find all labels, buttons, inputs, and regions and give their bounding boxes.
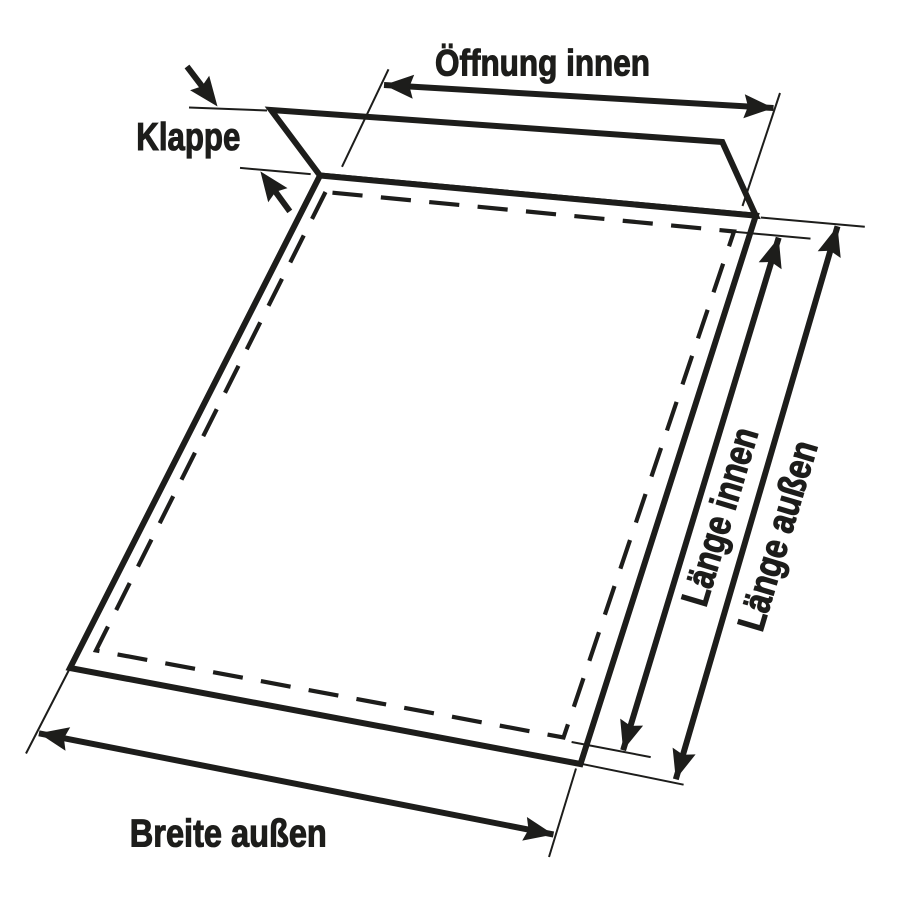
svg-text:Breite außen: Breite außen bbox=[130, 813, 327, 856]
svg-text:Öffnung innen: Öffnung innen bbox=[435, 42, 650, 83]
svg-text:Klappe: Klappe bbox=[136, 116, 240, 159]
